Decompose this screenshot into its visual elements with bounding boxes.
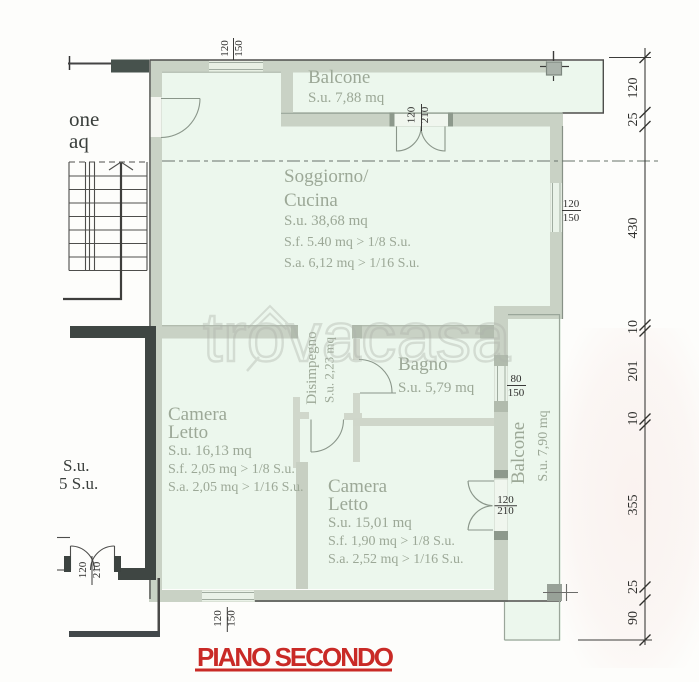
svg-text:120: 120 xyxy=(626,78,641,99)
svg-text:S.a. 6,12 mq > 1/16 S.u.: S.a. 6,12 mq > 1/16 S.u. xyxy=(284,256,419,271)
svg-text:210: 210 xyxy=(91,561,103,578)
svg-text:S.u. 15,01 mq: S.u. 15,01 mq xyxy=(328,515,412,531)
svg-text:120: 120 xyxy=(77,561,89,578)
svg-text:150: 150 xyxy=(563,212,580,224)
svg-text:S.f. 2,05 mq > 1/8 S.u.: S.f. 2,05 mq > 1/8 S.u. xyxy=(168,462,295,477)
svg-text:5 S.u.: 5 S.u. xyxy=(59,474,98,493)
svg-text:S.a. 2,52 mq > 1/16 S.u.: S.a. 2,52 mq > 1/16 S.u. xyxy=(328,552,463,567)
svg-text:Balcone: Balcone xyxy=(308,67,370,88)
svg-text:210: 210 xyxy=(497,505,514,517)
svg-text:S.u. 7,90 mq: S.u. 7,90 mq xyxy=(536,410,551,481)
svg-text:10: 10 xyxy=(626,320,641,334)
svg-text:S.u. 16,13 mq: S.u. 16,13 mq xyxy=(168,443,252,459)
svg-text:25: 25 xyxy=(626,580,641,594)
svg-text:90: 90 xyxy=(626,611,641,625)
svg-text:trovacasa: trovacasa xyxy=(203,298,511,376)
svg-text:Letto: Letto xyxy=(168,422,208,443)
svg-text:S.f. 5.40 mq > 1/8 S.u.: S.f. 5.40 mq > 1/8 S.u. xyxy=(284,235,411,250)
svg-text:one: one xyxy=(69,107,99,131)
svg-text:210: 210 xyxy=(419,106,431,123)
svg-text:aq: aq xyxy=(69,129,89,153)
svg-text:150: 150 xyxy=(233,40,245,57)
svg-text:S.u.: S.u. xyxy=(63,456,89,475)
svg-text:80: 80 xyxy=(511,373,523,385)
svg-text:PIANO SECONDO: PIANO SECONDO xyxy=(197,642,394,672)
svg-text:120: 120 xyxy=(406,106,418,123)
svg-text:355: 355 xyxy=(626,495,641,516)
svg-text:S.u. 5,79 mq: S.u. 5,79 mq xyxy=(398,380,475,396)
svg-text:S.u. 38,68 mq: S.u. 38,68 mq xyxy=(284,213,368,229)
svg-text:120: 120 xyxy=(212,610,224,627)
svg-text:120: 120 xyxy=(563,198,580,210)
svg-text:150: 150 xyxy=(508,387,525,399)
svg-text:Cucina: Cucina xyxy=(284,190,338,211)
svg-text:10: 10 xyxy=(626,412,641,426)
svg-text:S.a. 2,05 mq > 1/16 S.u.: S.a. 2,05 mq > 1/16 S.u. xyxy=(168,480,303,495)
svg-text:120: 120 xyxy=(219,40,231,57)
svg-text:S.u. 7,88 mq: S.u. 7,88 mq xyxy=(308,90,385,106)
svg-text:430: 430 xyxy=(626,218,641,239)
svg-text:201: 201 xyxy=(626,361,641,382)
svg-text:Balcone: Balcone xyxy=(508,422,529,484)
svg-text:25: 25 xyxy=(626,113,641,127)
svg-text:Letto: Letto xyxy=(328,494,368,515)
svg-text:S.f. 1,90 mq > 1/8 S.u.: S.f. 1,90 mq > 1/8 S.u. xyxy=(328,534,455,549)
svg-text:Soggiorno/: Soggiorno/ xyxy=(284,166,369,187)
